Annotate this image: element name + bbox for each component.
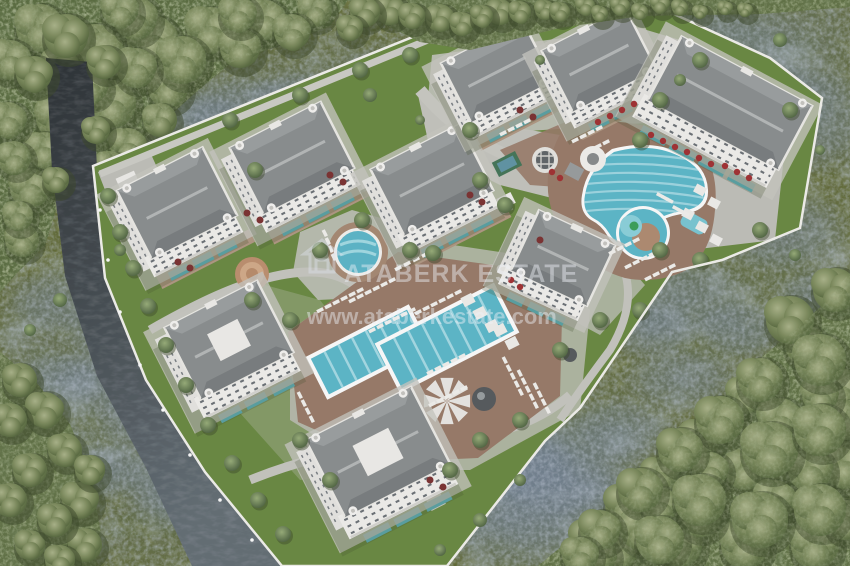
- svg-text:ATABERK ESTATE: ATABERK ESTATE: [344, 260, 578, 288]
- svg-text:www.ataberkestate.com: www.ataberkestate.com: [306, 304, 557, 329]
